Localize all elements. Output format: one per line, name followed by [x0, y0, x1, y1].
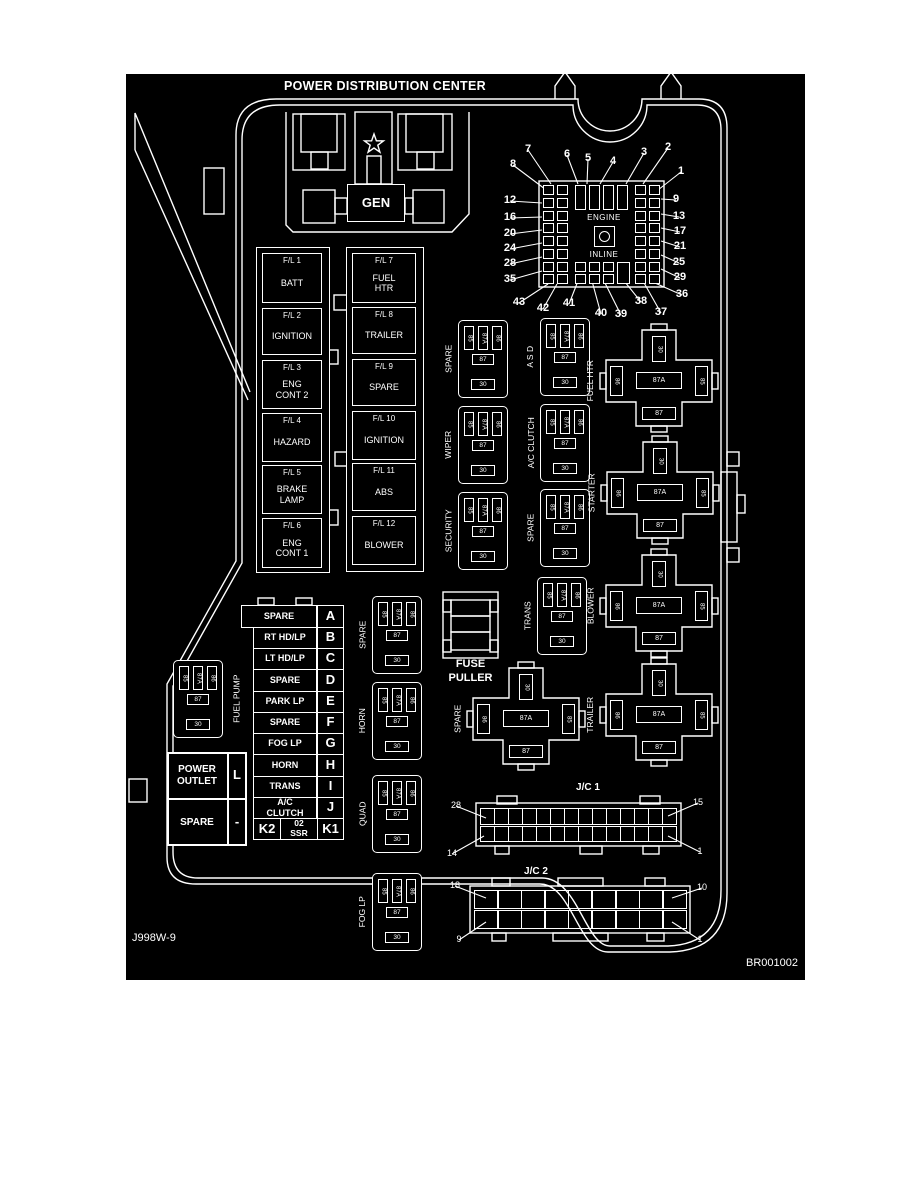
relay-pin-label: 85 — [695, 591, 708, 621]
engine-fuse-cell — [543, 262, 554, 272]
relay-pin-label: 86 — [610, 700, 623, 730]
relay-pin-label: 86 — [492, 326, 502, 350]
junction-connector-1-label: J/C 1 — [560, 782, 616, 794]
cavity-letter: J — [317, 797, 344, 818]
jc2-cavity — [639, 890, 663, 909]
fuse-callout-number: 13 — [671, 210, 687, 223]
relay-pin-label: 87A — [560, 410, 570, 434]
jc1-cavity — [550, 826, 565, 842]
engine-fuse-cell — [649, 198, 660, 208]
cavity-name: SPARE — [241, 605, 317, 627]
relay-pin-label: 87A — [560, 495, 570, 519]
relay-pin-label: 87A — [392, 602, 402, 626]
jc2-cavity — [568, 890, 592, 909]
relay-pin-label: 85 — [562, 704, 575, 734]
engine-fuse-cell — [635, 274, 646, 284]
relay-label: BLOWER — [583, 566, 599, 646]
cavity-letter: G — [317, 733, 344, 754]
relay-pin-label: 30 — [553, 548, 577, 559]
engine-fuse-cell — [635, 236, 646, 246]
relay-pin-label: 86 — [207, 666, 217, 690]
relay-pin-label: 30 — [553, 377, 577, 388]
fusible-link-name: TRAILER — [352, 321, 416, 350]
fuse-callout-number: 5 — [580, 152, 596, 165]
fuse-callout-number: 9 — [668, 193, 684, 206]
relay-pin-label: 87A — [636, 597, 682, 614]
cavity-name: LT HD/LP — [253, 648, 317, 669]
engine-fuse-cell — [635, 223, 646, 233]
engine-fuse-cell — [649, 249, 660, 259]
relay-pin-label: 85 — [695, 700, 708, 730]
relay-pin-label: 85 — [546, 410, 556, 434]
inline-fuse-cell — [603, 262, 614, 272]
cavity-name: SPARE — [253, 712, 317, 733]
jc1-pin-number: 15 — [689, 796, 707, 809]
engine-fuse-cell — [557, 274, 568, 284]
engine-fuse-cell — [543, 185, 554, 195]
relay-pin-label: 85 — [378, 879, 388, 903]
relay-pin-label: 87A — [478, 412, 488, 436]
fusible-link-id: F/L 7 — [352, 256, 416, 267]
jc1-cavity — [522, 808, 537, 825]
relay-pin-label: 87 — [642, 632, 676, 645]
relay-pin-label: 87A — [193, 666, 203, 690]
jc1-cavity — [508, 808, 523, 825]
fusible-link-id: F/L 3 — [262, 363, 322, 374]
cavity-name: TRANS — [253, 776, 317, 797]
fuse-callout-number: 36 — [674, 288, 690, 301]
relay-pin-label: 87 — [554, 523, 576, 534]
jc2-cavity — [639, 910, 663, 929]
fuse-callout-number: 40 — [593, 307, 609, 320]
figure-code-left: J998W-9 — [132, 931, 206, 945]
engine-fuse-cell — [649, 274, 660, 284]
cavity-name: RT HD/LP — [253, 627, 317, 648]
relay-pin-label: 30 — [519, 674, 533, 700]
relay-pin-label: 87A — [392, 688, 402, 712]
fuse-callout-number: 17 — [672, 225, 688, 238]
jc1-cavity — [522, 826, 537, 842]
relay-pin-label: 30 — [553, 463, 577, 474]
relay-pin-label: 87A — [478, 326, 488, 350]
fuse-callout-number: 29 — [672, 271, 688, 284]
engine-fuse-cell — [649, 236, 660, 246]
relay-pin-label: 85 — [378, 781, 388, 805]
fuse-callout-number: 25 — [671, 256, 687, 269]
relay-pin-label: 87A — [560, 324, 570, 348]
relay-label: STARTER — [584, 453, 600, 533]
engine-fuse-cell — [557, 211, 568, 221]
fusible-link-name: FUEL HTR — [352, 267, 416, 299]
jc1-cavity — [536, 826, 551, 842]
jc1-cavity — [606, 826, 621, 842]
relay-pin-label: 85 — [378, 602, 388, 626]
engine-fuse-cell — [635, 249, 646, 259]
fuse-callout-number: 12 — [502, 194, 518, 207]
fusible-link-name: BLOWER — [352, 530, 416, 561]
fuse-callout-number: 39 — [613, 308, 629, 321]
relay-label: A S D — [523, 318, 539, 396]
cavity-letter: D — [317, 669, 344, 691]
engine-fuse-cell — [649, 185, 660, 195]
cavity-letter: F — [317, 712, 344, 733]
inline-fuse-cell — [575, 262, 586, 272]
jc2-cavity — [521, 890, 545, 909]
jc1-cavity — [536, 808, 551, 825]
jc1-cavity — [634, 826, 649, 842]
relay-pin-label: 86 — [406, 602, 416, 626]
relay-pin-label: 87 — [187, 694, 209, 705]
fusible-link-id: F/L 9 — [352, 362, 416, 373]
relay-pin-label: 87 — [472, 526, 494, 537]
cavity-letter: E — [317, 691, 344, 712]
engine-fuse-cell — [649, 223, 660, 233]
jc1-cavity — [550, 808, 565, 825]
generator-label: GEN — [347, 184, 405, 222]
engine-fuse-cell — [557, 185, 568, 195]
relay-pin-label: 85 — [464, 412, 474, 436]
cavity-name: SPARE — [253, 669, 317, 691]
jc1-cavity — [634, 808, 649, 825]
relay-pin-label: 87 — [642, 407, 676, 420]
jc2-cavity — [474, 910, 498, 929]
jc2-pin-number: 9 — [450, 933, 468, 946]
junction-connector-2-label: J/C 2 — [508, 866, 564, 878]
cavity-letter: H — [317, 754, 344, 776]
engine-fuse-cell — [635, 211, 646, 221]
relay-pin-label: 87 — [386, 809, 408, 820]
fuse-callout-number: 21 — [672, 240, 688, 253]
fuse-callout-number: 28 — [502, 257, 518, 270]
relay-label: SPARE — [441, 320, 457, 398]
relay-pin-label: 30 — [385, 834, 409, 845]
relay-label: HORN — [355, 682, 371, 760]
relay-pin-label: 87 — [642, 741, 676, 754]
fuse-callout-number: 38 — [633, 295, 649, 308]
relay-pin-label: 86 — [406, 879, 416, 903]
relay-pin-label: 87 — [509, 745, 543, 758]
jc1-cavity — [662, 826, 677, 842]
relay-pin-label: 87A — [636, 372, 682, 389]
jc2-pin-number: 10 — [693, 881, 711, 894]
power-outlet-letter: L — [227, 752, 247, 799]
jc1-cavity — [648, 826, 663, 842]
fusible-link-id: F/L 2 — [262, 311, 322, 322]
relay-pin-label: 30 — [385, 741, 409, 752]
relay-pin-label: 86 — [610, 366, 623, 396]
figure-code-right: BR001002 — [740, 956, 804, 970]
jc1-cavity — [606, 808, 621, 825]
jc1-cavity — [564, 826, 579, 842]
relay-pin-label: 86 — [406, 781, 416, 805]
relay-pin-label: 86 — [574, 495, 584, 519]
relay-label: FOG LP — [355, 873, 371, 951]
jc2-cavity — [592, 890, 616, 909]
relay-pin-label: 30 — [385, 655, 409, 666]
relay-pin-label: 86 — [492, 412, 502, 436]
engine-fuse-cell — [557, 236, 568, 246]
engine-fuse-cell — [635, 185, 646, 195]
relay-pin-label: 85 — [464, 498, 474, 522]
fuse-callout-number: 41 — [561, 297, 577, 310]
relay-pin-label: 87 — [386, 630, 408, 641]
relay-pin-label: 30 — [652, 336, 666, 362]
relay-pin-label: 87A — [557, 583, 567, 607]
engine-fuse-cell — [543, 198, 554, 208]
cavity-name: A/C CLUTCH — [253, 797, 317, 818]
cavity-letter: K2 — [253, 818, 281, 840]
relay-pin-label: 87 — [551, 611, 573, 622]
relay-pin-label: 85 — [179, 666, 189, 690]
relay-pin-label: 30 — [385, 932, 409, 943]
relay-label: TRANS — [520, 577, 536, 655]
relay-pin-label: 30 — [471, 379, 495, 390]
relay-label: WIPER — [441, 406, 457, 484]
engine-fuse-cell-tall — [589, 185, 600, 210]
fusible-link-name: ENG CONT 2 — [262, 374, 322, 405]
engine-fuse-cell — [557, 223, 568, 233]
fuse-callout-number: 24 — [502, 242, 518, 255]
engine-fuse-cell — [649, 262, 660, 272]
fusible-link-name: BATT — [262, 267, 322, 299]
fusible-link-id: F/L 8 — [352, 310, 416, 321]
jc1-cavity — [662, 808, 677, 825]
relay-label: FUEL PUMP — [229, 660, 245, 738]
jc1-pin-number: 14 — [443, 847, 461, 860]
fuse-puller-label-1: FUSE — [443, 658, 498, 671]
relay-label: SECURITY — [441, 492, 457, 570]
relay-pin-label: 86 — [611, 478, 624, 508]
relay-pin-label: 30 — [652, 561, 666, 587]
relay-pin-label: 87A — [478, 498, 488, 522]
cavity-letter: K1 — [317, 818, 344, 840]
page-title: POWER DISTRIBUTION CENTER — [280, 78, 490, 94]
engine-fuse-cell — [635, 262, 646, 272]
relay-pin-label: 85 — [378, 688, 388, 712]
fusible-link-name: IGNITION — [262, 322, 322, 351]
cavity-name: PARK LP — [253, 691, 317, 712]
relay-pin-label: 86 — [571, 583, 581, 607]
relay-pin-label: 87 — [386, 716, 408, 727]
fuse-callout-number: 7 — [520, 143, 536, 156]
fusible-link-name: ENG CONT 1 — [262, 532, 322, 564]
jc1-cavity — [494, 826, 509, 842]
relay-label: QUAD — [355, 775, 371, 853]
jc2-pin-number: 1 — [691, 933, 709, 946]
engine-fuse-cell — [543, 236, 554, 246]
relay-pin-label: 87A — [503, 710, 549, 727]
fuse-callout-number: 2 — [660, 141, 676, 154]
engine-fuse-cell — [635, 198, 646, 208]
jc1-cavity — [592, 826, 607, 842]
jc2-cavity — [545, 910, 569, 929]
relay-pin-label: 85 — [543, 583, 553, 607]
inline-fuse-cell — [589, 262, 600, 272]
jc2-cavity — [592, 910, 616, 929]
jc1-cavity — [480, 808, 495, 825]
cavity-letter: A — [317, 605, 344, 627]
fusible-link-id: F/L 6 — [262, 521, 322, 532]
engine-fuse-cell — [543, 223, 554, 233]
fusible-link-name: BRAKE LAMP — [262, 479, 322, 510]
jc1-cavity — [620, 808, 635, 825]
relay-pin-label: 87A — [392, 879, 402, 903]
inline-fuse-cell-tall — [617, 262, 630, 284]
fusible-link-name: IGNITION — [352, 425, 416, 456]
jc1-cavity — [620, 826, 635, 842]
relay-pin-label: 87 — [472, 440, 494, 451]
engine-fuse-cell — [557, 198, 568, 208]
relay-pin-label: 85 — [464, 326, 474, 350]
engine-fuse-cell — [557, 262, 568, 272]
fuse-callout-number: 35 — [502, 273, 518, 286]
page: POWER DISTRIBUTION CENTER J998W-9 BR0010… — [0, 0, 918, 1188]
power-outlet-name: POWER OUTLET — [167, 752, 227, 799]
relay-label: SPARE — [450, 679, 466, 759]
fusible-link-id: F/L 10 — [352, 414, 416, 425]
relay-pin-label: 87 — [554, 352, 576, 363]
relay-pin-label: 86 — [406, 688, 416, 712]
fusible-link-name: ABS — [352, 477, 416, 507]
power-outlet-letter: - — [227, 799, 247, 846]
inline-fuse-cell — [603, 274, 614, 284]
fusible-link-name: SPARE — [352, 373, 416, 402]
fusible-link-id: F/L 1 — [262, 256, 322, 267]
engine-fuse-cell — [543, 249, 554, 259]
relay-label: A/C CLUTCH — [523, 404, 539, 482]
fuse-callout-number: 3 — [636, 146, 652, 159]
jc1-cavity — [508, 826, 523, 842]
engine-fuse-cell — [649, 211, 660, 221]
relay-pin-label: 85 — [546, 324, 556, 348]
jc1-cavity — [578, 826, 593, 842]
cavity-letter: I — [317, 776, 344, 797]
jc2-cavity — [568, 910, 592, 929]
engine-fuse-cell — [543, 274, 554, 284]
inline-fuse-cell — [575, 274, 586, 284]
cavity-name: HORN — [253, 754, 317, 776]
jc1-cavity — [648, 808, 663, 825]
relay-pin-label: 30 — [652, 670, 666, 696]
relay-pin-label: 86 — [492, 498, 502, 522]
fusible-link-id: F/L 5 — [262, 468, 322, 479]
jc1-cavity — [480, 826, 495, 842]
relay-pin-label: 30 — [653, 448, 667, 474]
relay-label: SPARE — [355, 596, 371, 674]
relay-pin-label: 87A — [637, 484, 683, 501]
fusible-link-id: F/L 11 — [352, 466, 416, 477]
power-outlet-name: SPARE — [167, 799, 227, 846]
relay-pin-label: 86 — [610, 591, 623, 621]
engine-fuse-cell-tall — [617, 185, 628, 210]
fuse-callout-number: 16 — [502, 211, 518, 224]
jc2-cavity — [616, 890, 640, 909]
fuse-callout-number: 1 — [673, 165, 689, 178]
relay-label: FUEL HTR — [583, 341, 599, 421]
inline-fuses-label: INLINE — [570, 250, 638, 261]
engine-fuse-cell — [543, 211, 554, 221]
fuse-callout-number: 4 — [605, 155, 621, 168]
fuse-callout-number: 43 — [511, 296, 527, 309]
jc2-cavity — [498, 910, 522, 929]
relay-pin-label: 85 — [695, 366, 708, 396]
relay-pin-label: 85 — [696, 478, 709, 508]
jc2-cavity — [616, 910, 640, 929]
relay-label: TRAILER — [583, 675, 599, 755]
engine-fuse-cell-tall — [575, 185, 586, 210]
jc1-pin-number: 28 — [447, 799, 465, 812]
engine-fuses-label: ENGINE — [570, 213, 638, 224]
jc1-cavity — [564, 808, 579, 825]
fuse-callout-number: 37 — [653, 306, 669, 319]
relay-pin-label: 30 — [471, 551, 495, 562]
engine-fuse-cell — [557, 249, 568, 259]
relay-pin-label: 87 — [472, 354, 494, 365]
fusible-link-id: F/L 4 — [262, 416, 322, 427]
fuse-callout-number: 8 — [505, 158, 521, 171]
cavity-letter: C — [317, 648, 344, 669]
cavity-name: FOG LP — [253, 733, 317, 754]
relay-pin-label: 86 — [477, 704, 490, 734]
fuse-callout-number: 6 — [559, 148, 575, 161]
relay-pin-label: 30 — [471, 465, 495, 476]
jc1-cavity — [494, 808, 509, 825]
fusible-link-id: F/L 12 — [352, 519, 416, 530]
jc2-cavity — [498, 890, 522, 909]
fuse-callout-number: 20 — [502, 227, 518, 240]
fusible-link-name: HAZARD — [262, 427, 322, 458]
jc1-cavity — [578, 808, 593, 825]
engine-icon-circle — [599, 231, 610, 242]
relay-pin-label: 30 — [186, 719, 210, 730]
relay-pin-label: 30 — [550, 636, 574, 647]
relay-pin-label: 87 — [386, 907, 408, 918]
jc2-cavity — [545, 890, 569, 909]
jc2-cavity — [474, 890, 498, 909]
jc1-pin-number: 1 — [691, 845, 709, 858]
jc2-cavity — [663, 910, 687, 929]
cavity-letter: B — [317, 627, 344, 648]
cavity-name: 02 SSR — [280, 818, 318, 840]
jc2-pin-number: 18 — [446, 879, 464, 892]
jc2-cavity — [663, 890, 687, 909]
relay-pin-label: 85 — [546, 495, 556, 519]
relay-label: SPARE — [523, 489, 539, 567]
relay-pin-label: 87 — [643, 519, 677, 532]
inline-fuse-cell — [589, 274, 600, 284]
relay-pin-label: 87 — [554, 438, 576, 449]
jc2-cavity — [521, 910, 545, 929]
engine-fuse-cell-tall — [603, 185, 614, 210]
relay-pin-label: 87A — [392, 781, 402, 805]
jc1-cavity — [592, 808, 607, 825]
fuse-callout-number: 42 — [535, 302, 551, 315]
relay-pin-label: 87A — [636, 706, 682, 723]
